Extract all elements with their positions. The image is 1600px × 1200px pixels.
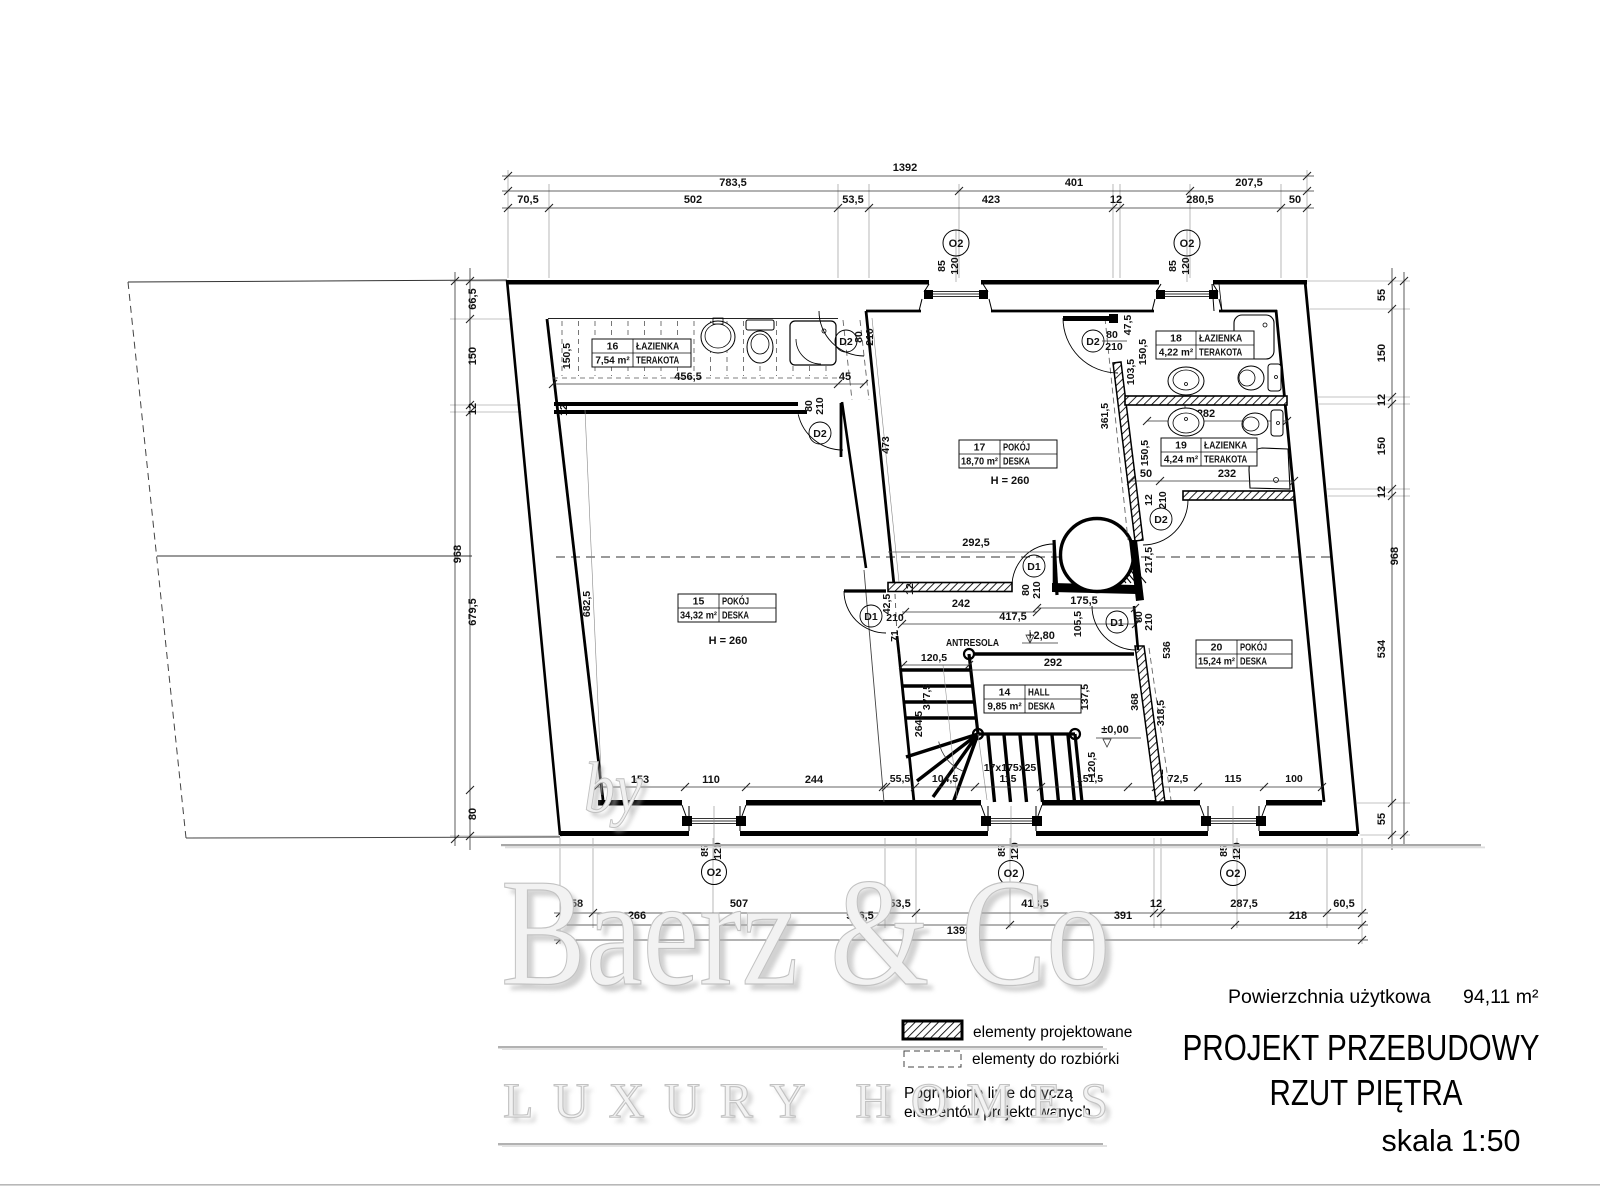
svg-text:391: 391: [1114, 910, 1132, 922]
svg-text:15: 15: [693, 596, 705, 608]
svg-text:150: 150: [1376, 437, 1388, 455]
svg-text:4,24 m²: 4,24 m²: [1164, 454, 1199, 466]
svg-text:55,5: 55,5: [890, 773, 911, 785]
svg-text:66,5: 66,5: [467, 288, 479, 309]
svg-text:60,5: 60,5: [1333, 898, 1354, 910]
svg-text:292,5: 292,5: [962, 537, 990, 549]
svg-text:20: 20: [1211, 642, 1223, 654]
svg-text:210: 210: [814, 397, 826, 415]
svg-text:45: 45: [839, 371, 851, 383]
svg-text:103,5: 103,5: [1125, 359, 1137, 385]
svg-text:O2: O2: [1180, 238, 1195, 250]
svg-text:D2: D2: [813, 428, 827, 440]
svg-text:4,22 m²: 4,22 m²: [1159, 347, 1194, 359]
svg-text:18,70 m²: 18,70 m²: [961, 456, 998, 468]
svg-text:POKÓJ: POKÓJ: [1003, 441, 1030, 454]
svg-text:120: 120: [1180, 257, 1192, 275]
svg-text:210: 210: [864, 328, 876, 346]
svg-text:150: 150: [1376, 344, 1388, 362]
svg-text:72,5: 72,5: [1168, 773, 1189, 785]
svg-text:D1: D1: [1110, 617, 1124, 629]
svg-text:DESKA: DESKA: [1003, 456, 1030, 468]
svg-text:377,5: 377,5: [921, 684, 933, 710]
svg-text:104,5: 104,5: [932, 773, 958, 785]
svg-text:ŁAZIENKA: ŁAZIENKA: [1199, 333, 1243, 345]
svg-text:280,5: 280,5: [1186, 194, 1214, 206]
svg-text:85: 85: [1167, 260, 1179, 272]
svg-text:150,5: 150,5: [1139, 440, 1151, 466]
svg-text:12: 12: [467, 403, 479, 415]
svg-text:DESKA: DESKA: [1240, 656, 1267, 668]
svg-text:±0,00: ±0,00: [1101, 724, 1128, 736]
svg-text:292: 292: [1044, 657, 1062, 669]
svg-text:244: 244: [805, 774, 824, 786]
svg-text:120: 120: [949, 257, 961, 275]
svg-text:120,5: 120,5: [1086, 752, 1098, 778]
svg-text:9,85 m²: 9,85 m²: [987, 701, 1022, 713]
svg-text:536: 536: [1161, 641, 1173, 659]
svg-text:12: 12: [1110, 194, 1122, 206]
svg-text:TERAKOTA: TERAKOTA: [1204, 454, 1248, 466]
svg-text:Powierzchnia użytkowa: Powierzchnia użytkowa: [1228, 986, 1431, 1008]
svg-text:TERAKOTA: TERAKOTA: [1199, 347, 1243, 359]
svg-text:175,5: 175,5: [1070, 595, 1098, 607]
svg-text:115: 115: [1225, 773, 1242, 785]
svg-text:55: 55: [1376, 813, 1388, 825]
svg-text:80: 80: [1106, 329, 1118, 341]
svg-text:1392: 1392: [893, 162, 917, 174]
svg-text:O2: O2: [949, 238, 964, 250]
svg-text:50: 50: [1140, 468, 1152, 480]
svg-text:TERAKOTA: TERAKOTA: [636, 355, 680, 367]
svg-text:70,5: 70,5: [517, 194, 538, 206]
svg-text:210: 210: [1143, 613, 1155, 631]
svg-text:150: 150: [467, 347, 479, 365]
svg-text:210: 210: [1157, 491, 1169, 509]
svg-text:80: 80: [467, 808, 479, 820]
svg-text:34,32 m²: 34,32 m²: [680, 610, 717, 622]
svg-text:D2: D2: [1154, 514, 1168, 526]
svg-text:120,5: 120,5: [921, 652, 947, 664]
svg-text:242: 242: [952, 598, 970, 610]
svg-text:150,5: 150,5: [1137, 339, 1149, 365]
svg-text:ŁAZIENKA: ŁAZIENKA: [1204, 440, 1248, 452]
svg-text:318,5: 318,5: [1155, 700, 1167, 726]
svg-text:15,24 m²: 15,24 m²: [1198, 656, 1235, 668]
svg-text:O2: O2: [1226, 868, 1241, 880]
svg-text:H = 260: H = 260: [991, 475, 1030, 487]
svg-text:14: 14: [999, 687, 1011, 699]
svg-text:DESKA: DESKA: [722, 610, 749, 622]
svg-text:783,5: 783,5: [719, 177, 747, 189]
svg-text:50: 50: [1289, 194, 1301, 206]
svg-text:D1: D1: [864, 611, 878, 623]
svg-text:PROJEKT PRZEBUDOWY: PROJEKT PRZEBUDOWY: [1183, 1027, 1540, 1068]
svg-text:RZUT PIĘTRA: RZUT PIĘTRA: [1270, 1072, 1463, 1113]
svg-text:100: 100: [1285, 773, 1303, 785]
svg-text:502: 502: [684, 194, 702, 206]
svg-text:401: 401: [1065, 177, 1083, 189]
svg-text:71: 71: [889, 630, 901, 642]
svg-text:elementy projektowane: elementy projektowane: [973, 1024, 1132, 1041]
svg-text:POKÓJ: POKÓJ: [722, 595, 749, 608]
svg-text:232: 232: [1218, 468, 1236, 480]
svg-text:12: 12: [1376, 394, 1388, 406]
svg-text:12: 12: [904, 583, 916, 595]
svg-text:115: 115: [1000, 773, 1017, 785]
svg-text:968: 968: [452, 545, 464, 563]
svg-text:361,5: 361,5: [1099, 403, 1111, 429]
svg-text:HALL: HALL: [1028, 687, 1050, 699]
svg-text:D2: D2: [839, 336, 853, 348]
svg-text:473: 473: [880, 436, 892, 454]
svg-text:110: 110: [702, 774, 720, 786]
svg-text:H = 260: H = 260: [709, 635, 748, 647]
svg-text:423: 423: [982, 194, 1000, 206]
svg-text:150,5: 150,5: [561, 343, 573, 369]
svg-text:368: 368: [1129, 693, 1141, 711]
svg-text:12: 12: [1150, 898, 1162, 910]
svg-text:47,5: 47,5: [1122, 315, 1134, 336]
svg-text:POKÓJ: POKÓJ: [1240, 641, 1267, 654]
svg-text:456,5: 456,5: [674, 371, 702, 383]
svg-text:679,5: 679,5: [467, 598, 479, 626]
svg-text:D1: D1: [1027, 561, 1041, 573]
svg-text:elementy do rozbiórki: elementy do rozbiórki: [972, 1051, 1119, 1068]
svg-text:210: 210: [1031, 581, 1043, 599]
svg-text:105,5: 105,5: [1072, 611, 1084, 637]
svg-text:DESKA: DESKA: [1028, 701, 1055, 713]
svg-text:18: 18: [1170, 333, 1182, 345]
svg-text:12: 12: [1143, 494, 1155, 506]
svg-text:137,5: 137,5: [1079, 684, 1091, 710]
svg-text:217,5: 217,5: [1143, 547, 1155, 573]
svg-text:D2: D2: [1086, 336, 1100, 348]
svg-text:682,5: 682,5: [581, 591, 593, 617]
svg-text:by: by: [584, 748, 642, 828]
svg-text:Baerz & Co: Baerz & Co: [501, 848, 1110, 1018]
svg-text:218: 218: [1289, 910, 1307, 922]
svg-text:17: 17: [974, 442, 986, 454]
svg-text:210: 210: [1105, 341, 1123, 353]
svg-text:53,5: 53,5: [842, 194, 863, 206]
svg-text:264,5: 264,5: [913, 711, 925, 737]
svg-text:ŁAZIENKA: ŁAZIENKA: [636, 341, 680, 353]
svg-text:94,11 m²: 94,11 m²: [1463, 986, 1539, 1008]
svg-text:7,54 m²: 7,54 m²: [595, 355, 630, 367]
svg-text:85: 85: [936, 260, 948, 272]
svg-text:ANTRESOLA: ANTRESOLA: [946, 638, 999, 649]
svg-text:207,5: 207,5: [1235, 177, 1263, 189]
svg-text:287,5: 287,5: [1230, 898, 1258, 910]
svg-text:534: 534: [1376, 639, 1388, 658]
svg-text:968: 968: [1389, 547, 1401, 565]
svg-text:16: 16: [607, 341, 619, 353]
svg-text:417,5: 417,5: [999, 611, 1027, 623]
svg-text:210: 210: [886, 612, 904, 624]
svg-text:55: 55: [1376, 289, 1388, 301]
svg-text:skala 1:50: skala 1:50: [1382, 1123, 1521, 1158]
svg-text:19: 19: [1175, 440, 1187, 452]
svg-text:12: 12: [1376, 486, 1388, 498]
